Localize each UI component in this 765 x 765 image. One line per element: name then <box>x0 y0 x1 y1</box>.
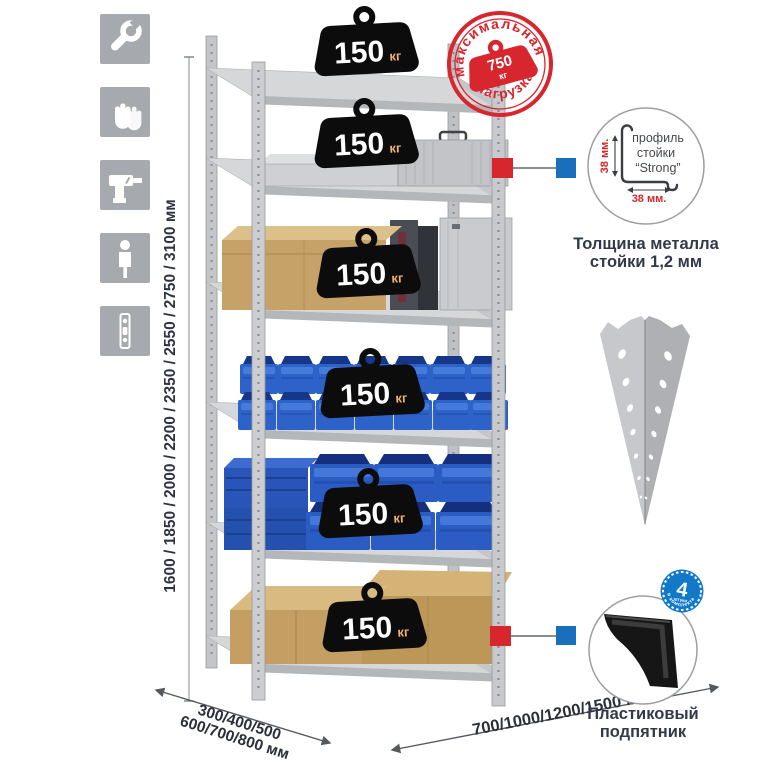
svg-text:150: 150 <box>333 35 385 71</box>
red-marker <box>492 158 513 178</box>
svg-text:стойки: стойки <box>637 146 675 160</box>
svg-text:150: 150 <box>333 127 385 163</box>
depth-dimension: 300/400/500 600/700/800 мм <box>156 690 330 763</box>
svg-text:150: 150 <box>339 377 391 413</box>
svg-text:подпятник: подпятник <box>600 723 687 741</box>
callout-connector-bottom <box>490 626 576 646</box>
blue-marker <box>556 158 576 178</box>
svg-text:стойки 1,2 мм: стойки 1,2 мм <box>590 253 702 271</box>
blue-marker <box>556 626 576 645</box>
svg-text:1600 / 1850 / 2000 / 2200 / 23: 1600 / 1850 / 2000 / 2200 / 2350 / 2550 … <box>162 199 179 593</box>
profile-detail: 38 мм. 38 мм. профиль стойки “Strong” То… <box>573 108 719 271</box>
svg-text:кг: кг <box>397 624 410 640</box>
red-marker <box>490 626 511 646</box>
svg-text:150: 150 <box>337 497 389 533</box>
svg-text:“Strong”: “Strong” <box>635 161 680 175</box>
callout-connector-top <box>492 158 576 178</box>
svg-text:кг: кг <box>391 270 404 286</box>
illustration: 150 кг 150 кг 150 кг 150 кг 150 кг 150 к… <box>0 0 765 765</box>
svg-text:профиль: профиль <box>632 131 684 145</box>
svg-text:кг: кг <box>393 510 406 526</box>
svg-text:кг: кг <box>389 140 402 156</box>
svg-text:150: 150 <box>341 611 393 647</box>
product-infographic: 150 кг 150 кг 150 кг 150 кг 150 кг 150 к… <box>0 0 765 765</box>
svg-text:кг: кг <box>389 48 402 64</box>
svg-text:38 мм.: 38 мм. <box>632 193 667 205</box>
svg-text:Толщина металла: Толщина металла <box>573 235 719 253</box>
svg-text:150: 150 <box>335 257 387 293</box>
foot-detail: 4 штуки в комплекте Пластиковый подпятни… <box>587 566 707 741</box>
svg-text:38 мм.: 38 мм. <box>599 139 611 174</box>
corner-post-image <box>600 316 690 526</box>
load-badge-1: 150 кг <box>312 6 420 76</box>
svg-text:кг: кг <box>395 390 408 406</box>
height-dimension: 1600 / 1850 / 2000 / 2200 / 2350 / 2550 … <box>162 57 194 701</box>
svg-text:Пластиковый: Пластиковый <box>587 705 698 723</box>
